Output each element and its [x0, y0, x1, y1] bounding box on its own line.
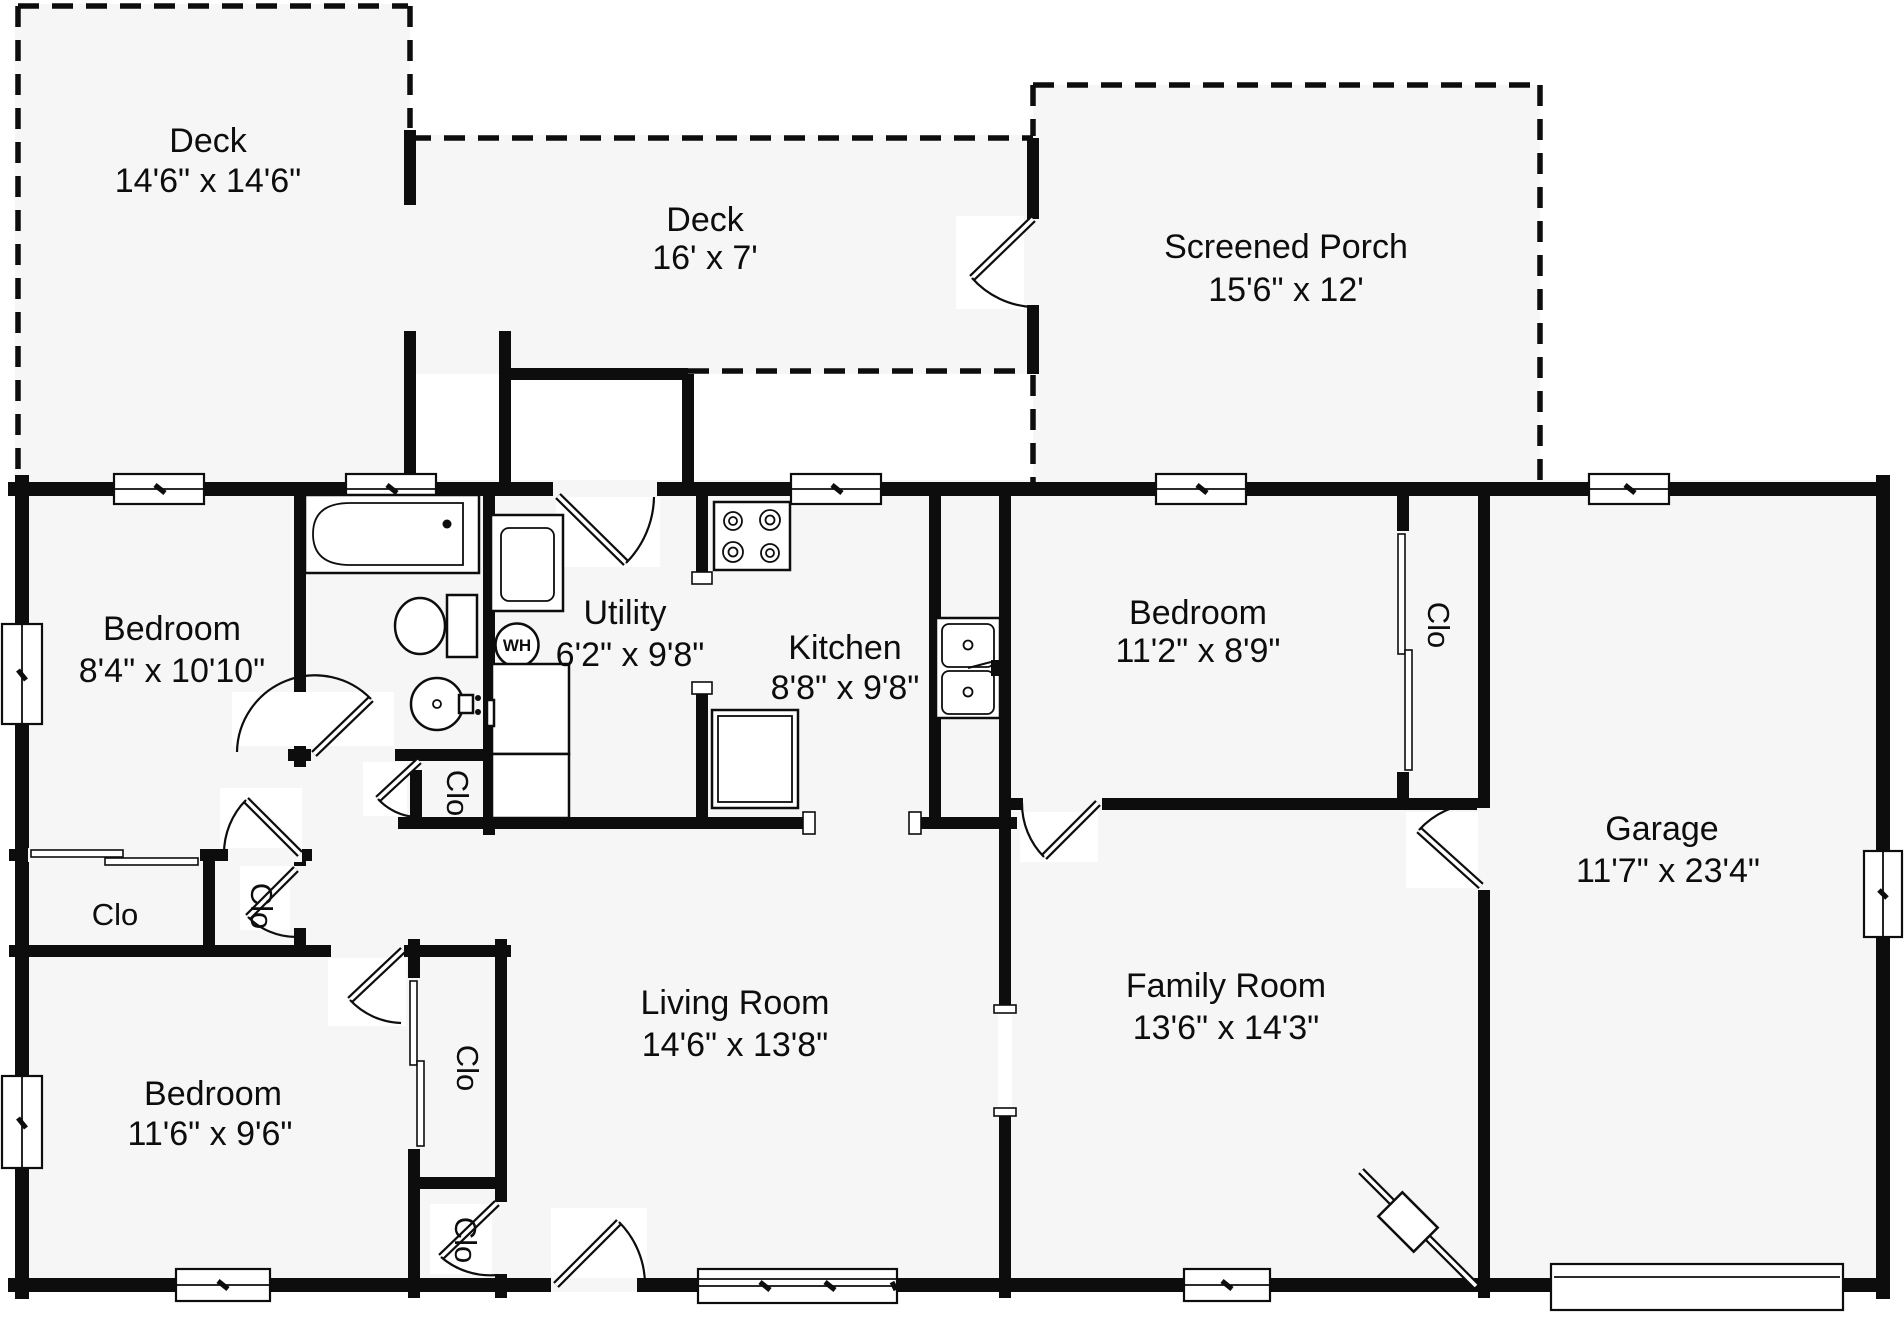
- washer: [491, 515, 563, 611]
- deck-large-floor: [15, 4, 410, 489]
- bedroom2-closet-slider-panel-1: [1398, 534, 1405, 654]
- opening-living-family: [998, 1009, 1012, 1112]
- kitchen-label: Kitchen: [788, 629, 901, 667]
- window-family-bottom: [1184, 1269, 1270, 1301]
- porch-door: [956, 216, 1033, 309]
- window-kitchen-top: [791, 474, 881, 504]
- front-door: [551, 1208, 647, 1285]
- bedroom3-door: [328, 950, 406, 1026]
- jamb-living-family-top: [994, 1005, 1016, 1013]
- garage-entry-door: [1406, 803, 1481, 888]
- kitchen-counter: [712, 710, 798, 808]
- window-living-bottom: [698, 1269, 897, 1303]
- bedroom2-label: Bedroom: [1129, 594, 1267, 632]
- bedroom3-door-swing-area: [328, 958, 406, 1026]
- water-heater-label: WH: [503, 636, 531, 655]
- deck-small-label: Deck: [666, 201, 744, 239]
- opening-garage-door: [1477, 808, 1491, 890]
- garage-dims: 11'7" x 23'4": [1576, 852, 1760, 890]
- garage-label: Garage: [1605, 810, 1718, 848]
- jamb-kitchen-living-right: [909, 812, 921, 834]
- window-bedroom3-left: [2, 1076, 42, 1168]
- window-bedroom3-bottom: [176, 1269, 270, 1301]
- jamb-utility-kitchen-top: [692, 572, 712, 584]
- deck-large-label: Deck: [169, 122, 247, 160]
- bedroom1-label: Bedroom: [103, 610, 241, 648]
- bedroom2-dims: 11'2" x 8'9": [1115, 632, 1280, 670]
- closet-a-label: Clo: [92, 897, 139, 932]
- family-room-label: Family Room: [1126, 967, 1326, 1005]
- deck-small-dims: 16' x 7': [652, 239, 758, 277]
- refrigerator: [487, 664, 569, 754]
- porch-dims: 15'6" x 12': [1208, 271, 1364, 309]
- opening-porch-door: [1026, 219, 1040, 305]
- utility-label: Utility: [583, 594, 666, 632]
- window-bedroom2-top: [1156, 474, 1246, 504]
- floorplan-svg: WH: [0, 0, 1904, 1327]
- deck-large-dims: 14'6" x 14'6": [115, 162, 301, 200]
- water-heater: WH: [496, 624, 539, 667]
- living-room-label: Living Room: [641, 984, 830, 1022]
- closet-tall-slider-panel-1: [410, 981, 417, 1065]
- closet-a-slider-panel-2: [105, 858, 198, 865]
- utility-entry-door: [556, 496, 660, 567]
- closet-b-label: Clo: [244, 883, 279, 930]
- bedroom2-closet-label: Clo: [1421, 602, 1456, 649]
- floorplan-canvas: WH: [0, 0, 1904, 1327]
- garage-vehicle-door: [1551, 1264, 1843, 1310]
- bathtub: [305, 495, 479, 573]
- jamb-living-family-bottom: [994, 1108, 1016, 1116]
- kitchen-faucet: [991, 660, 1001, 676]
- bedroom3-label: Bedroom: [144, 1075, 282, 1113]
- window-garage-right: [1864, 851, 1902, 937]
- utility-cabinet: [492, 754, 569, 818]
- window-garage-top: [1589, 474, 1669, 504]
- family-room-dims: 13'6" x 14'3": [1133, 1009, 1319, 1047]
- living-room-dims: 14'6" x 13'8": [642, 1026, 828, 1064]
- window-bedroom1-left: [2, 624, 42, 724]
- closet2-label: Clo: [448, 1217, 483, 1264]
- opening-utility-entry-door: [553, 481, 657, 497]
- bath-closet-label: Clo: [440, 770, 475, 817]
- bedroom2-closet-slider-panel-2: [1405, 650, 1412, 770]
- bedroom3-dims: 11'6" x 9'6": [127, 1115, 292, 1153]
- closet-tall-slider-panel-2: [417, 1061, 424, 1146]
- opening-closet2-door: [494, 1202, 508, 1274]
- kitchen-dims: 8'8" x 9'8": [771, 669, 920, 707]
- bedroom1-dims: 8'4" x 10'10": [79, 652, 265, 690]
- jamb-utility-kitchen-bottom: [692, 682, 712, 694]
- closet-a-slider-panel-1: [31, 850, 123, 857]
- toilet: [395, 595, 477, 657]
- bedroom1-door: [220, 788, 302, 854]
- stove: [714, 502, 790, 570]
- utility-dims: 6'2" x 9'8": [556, 636, 705, 674]
- kitchen-sink: [936, 618, 1001, 718]
- porch-label: Screened Porch: [1164, 228, 1408, 266]
- closet-tall-label: Clo: [450, 1045, 485, 1092]
- jamb-kitchen-living-left: [803, 812, 815, 834]
- opening-kitchen-living: [810, 816, 914, 830]
- window-bedroom1-top: [114, 474, 204, 504]
